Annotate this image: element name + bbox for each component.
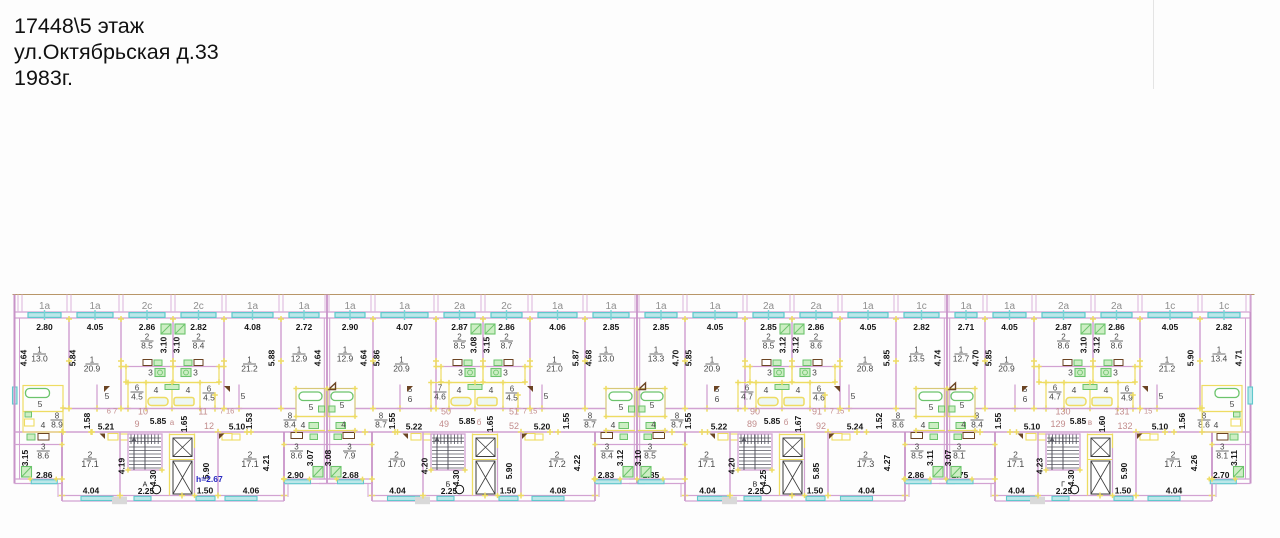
svg-text:131: 131 [1114, 407, 1129, 417]
svg-text:1.50: 1.50 [197, 486, 214, 496]
svg-text:2: 2 [555, 450, 560, 460]
svg-text:4: 4 [154, 385, 159, 395]
svg-text:5: 5 [1230, 399, 1235, 409]
svg-text:12.9: 12.9 [337, 354, 354, 364]
svg-text:4: 4 [301, 420, 306, 430]
svg-text:2.25: 2.25 [138, 486, 155, 496]
svg-text:4.64: 4.64 [359, 349, 369, 366]
svg-text:4: 4 [186, 385, 191, 395]
svg-text:3.10: 3.10 [172, 336, 182, 353]
svg-text:5: 5 [650, 400, 655, 410]
svg-text:3: 3 [148, 368, 153, 378]
svg-text:13.0: 13.0 [31, 354, 48, 364]
svg-text:5.86: 5.86 [372, 349, 382, 366]
svg-text:5.85: 5.85 [764, 416, 781, 426]
svg-text:1.55: 1.55 [561, 412, 571, 429]
svg-text:5.90: 5.90 [1186, 349, 1196, 366]
svg-text:4.7: 4.7 [741, 392, 753, 402]
svg-text:3.12: 3.12 [1092, 336, 1102, 353]
svg-text:5.10: 5.10 [1152, 422, 1169, 432]
svg-text:4.64: 4.64 [19, 349, 29, 366]
svg-text:8.5: 8.5 [141, 341, 153, 351]
svg-text:5.85: 5.85 [459, 416, 476, 426]
svg-text:4.64: 4.64 [313, 349, 323, 366]
svg-text:2.25: 2.25 [1056, 486, 1073, 496]
svg-text:4: 4 [961, 421, 966, 430]
svg-text:4: 4 [764, 385, 769, 395]
svg-text:б: б [477, 418, 482, 427]
svg-text:5.21: 5.21 [98, 422, 115, 432]
svg-text:8.6: 8.6 [37, 451, 49, 461]
svg-text:в: в [1088, 418, 1092, 427]
svg-text:2: 2 [1013, 450, 1018, 460]
svg-text:8.1: 8.1 [1216, 451, 1228, 461]
svg-text:2.85: 2.85 [653, 322, 670, 332]
svg-text:4.08: 4.08 [244, 322, 261, 332]
svg-text:4: 4 [1214, 420, 1219, 430]
svg-text:17.1: 17.1 [698, 459, 716, 469]
svg-text:2.86: 2.86 [1108, 322, 1125, 332]
svg-text:8.7: 8.7 [501, 341, 513, 351]
svg-text:3.08: 3.08 [469, 336, 479, 353]
svg-text:1.55: 1.55 [387, 412, 397, 429]
svg-text:89: 89 [747, 419, 757, 429]
svg-text:8.4: 8.4 [284, 420, 296, 430]
svg-text:8.7: 8.7 [375, 420, 387, 430]
svg-text:8.6: 8.6 [1198, 420, 1210, 430]
svg-text:12: 12 [204, 421, 214, 431]
svg-text:5: 5 [105, 391, 110, 401]
svg-text:5.10: 5.10 [1024, 422, 1041, 432]
svg-text:4: 4 [651, 421, 656, 430]
svg-text:4.5: 4.5 [506, 393, 518, 403]
svg-text:132: 132 [1117, 421, 1132, 431]
svg-text:5.22: 5.22 [711, 422, 728, 432]
svg-text:2.72: 2.72 [296, 322, 313, 332]
svg-text:8.7: 8.7 [584, 420, 596, 430]
svg-text:5.85: 5.85 [811, 462, 821, 479]
svg-text:52: 52 [509, 421, 519, 431]
svg-text:2.87: 2.87 [1055, 322, 1072, 332]
svg-text:12.7: 12.7 [953, 354, 970, 364]
svg-text:17448\5 этаж: 17448\5 этаж [14, 14, 145, 38]
svg-text:8.4: 8.4 [971, 420, 983, 430]
svg-text:5.90: 5.90 [1119, 462, 1129, 479]
svg-text:2: 2 [704, 450, 709, 460]
svg-text:2.87: 2.87 [451, 322, 468, 332]
svg-text:13.0: 13.0 [598, 354, 615, 364]
svg-text:6 7: 6 7 [107, 407, 117, 416]
svg-text:17.1: 17.1 [241, 459, 259, 469]
svg-text:3.11: 3.11 [925, 450, 935, 466]
svg-text:3: 3 [1113, 368, 1118, 378]
svg-text:5: 5 [544, 391, 549, 401]
svg-text:4: 4 [1072, 385, 1077, 395]
svg-text:2: 2 [394, 450, 399, 460]
svg-text:3.10: 3.10 [633, 449, 643, 466]
svg-text:90: 90 [750, 407, 760, 417]
svg-text:17.1: 17.1 [81, 459, 99, 469]
svg-text:17.3: 17.3 [857, 459, 875, 469]
svg-text:3.10: 3.10 [159, 336, 169, 353]
svg-text:2.71: 2.71 [958, 322, 975, 332]
svg-text:5.85: 5.85 [150, 416, 167, 426]
svg-text:4.05: 4.05 [860, 322, 877, 332]
svg-text:10: 10 [138, 407, 148, 417]
svg-text:5.85: 5.85 [882, 349, 892, 366]
svg-text:4: 4 [796, 385, 801, 395]
svg-text:4.30: 4.30 [451, 469, 461, 486]
svg-text:4.08: 4.08 [550, 486, 567, 496]
svg-text:5: 5 [1159, 391, 1164, 401]
svg-text:4.05: 4.05 [1162, 322, 1179, 332]
svg-text:5.84: 5.84 [68, 349, 78, 366]
svg-text:4.68: 4.68 [584, 349, 594, 366]
svg-text:3.12: 3.12 [615, 449, 625, 466]
svg-text:5: 5 [619, 402, 624, 412]
svg-text:4.70: 4.70 [671, 349, 681, 366]
svg-text:4.74: 4.74 [933, 349, 943, 366]
svg-text:21.2: 21.2 [1159, 364, 1176, 374]
svg-text:2.82: 2.82 [913, 322, 930, 332]
svg-text:3.15: 3.15 [20, 449, 30, 466]
svg-text:4.30: 4.30 [148, 469, 158, 486]
svg-text:4.20: 4.20 [420, 457, 430, 474]
svg-text:5: 5 [309, 402, 314, 412]
svg-text:4.19: 4.19 [117, 457, 127, 474]
svg-text:6: 6 [1023, 394, 1028, 404]
svg-text:2.86: 2.86 [139, 322, 156, 332]
svg-text:3.12: 3.12 [791, 336, 801, 353]
svg-text:1.65: 1.65 [179, 415, 189, 432]
svg-text:4.05: 4.05 [87, 322, 104, 332]
svg-text:8.6: 8.6 [1111, 341, 1123, 351]
svg-text:6: 6 [408, 394, 413, 404]
svg-text:3.08: 3.08 [323, 449, 333, 466]
svg-text:4.25: 4.25 [758, 469, 768, 486]
svg-text:5.22: 5.22 [406, 422, 423, 432]
svg-text:3.11: 3.11 [1229, 450, 1239, 466]
svg-text:4.04: 4.04 [1008, 486, 1025, 496]
svg-text:4.07: 4.07 [396, 322, 413, 332]
svg-text:17.0: 17.0 [388, 459, 406, 469]
svg-text:4.6: 4.6 [813, 393, 825, 403]
svg-text:5.88: 5.88 [267, 349, 277, 366]
svg-text:129: 129 [1050, 419, 1065, 429]
svg-text:8.4: 8.4 [193, 341, 205, 351]
svg-text:4.04: 4.04 [699, 486, 716, 496]
svg-text:13.5: 13.5 [908, 354, 925, 364]
svg-text:4.27: 4.27 [882, 454, 892, 471]
svg-text:4.9: 4.9 [1121, 393, 1133, 403]
svg-text:ул.Октябрьская д.33: ул.Октябрьская д.33 [14, 40, 219, 64]
svg-text:4: 4 [1104, 385, 1109, 395]
svg-text:1.50: 1.50 [1115, 486, 1132, 496]
svg-text:4.06: 4.06 [549, 322, 566, 332]
svg-text:3.15: 3.15 [482, 336, 492, 353]
svg-text:2.82: 2.82 [1216, 322, 1233, 332]
svg-text:4.06: 4.06 [243, 486, 260, 496]
svg-text:б: б [784, 418, 789, 427]
svg-text:8.6: 8.6 [1058, 341, 1070, 351]
svg-text:4.23: 4.23 [1035, 457, 1045, 474]
svg-text:20.9: 20.9 [998, 364, 1015, 374]
svg-text:3: 3 [193, 368, 198, 378]
svg-text:4.21: 4.21 [261, 454, 271, 471]
svg-text:8.5: 8.5 [454, 341, 466, 351]
svg-text:а: а [170, 418, 175, 427]
svg-text:4: 4 [341, 421, 346, 430]
svg-text:5: 5 [929, 402, 934, 412]
svg-text:20.8: 20.8 [857, 364, 874, 374]
svg-text:3.10: 3.10 [1079, 336, 1089, 353]
svg-text:7.9: 7.9 [344, 451, 356, 461]
svg-text:1.53: 1.53 [244, 412, 254, 429]
svg-text:5.20: 5.20 [534, 422, 551, 432]
svg-text:13.3: 13.3 [648, 354, 665, 364]
svg-text:3: 3 [812, 368, 817, 378]
svg-text:4.7: 4.7 [1049, 392, 1061, 402]
svg-text:1.60: 1.60 [1097, 415, 1107, 432]
svg-text:3: 3 [1068, 368, 1073, 378]
svg-text:3: 3 [503, 368, 508, 378]
svg-text:8.4: 8.4 [601, 451, 613, 461]
svg-text:5: 5 [38, 399, 43, 409]
svg-text:4: 4 [921, 420, 926, 430]
svg-text:4.04: 4.04 [83, 486, 100, 496]
svg-text:5.85: 5.85 [984, 349, 994, 366]
svg-text:2.85: 2.85 [760, 322, 777, 332]
svg-text:9: 9 [134, 419, 139, 429]
svg-text:20.9: 20.9 [393, 364, 410, 374]
svg-text:2: 2 [1171, 450, 1176, 460]
svg-text:4.22: 4.22 [572, 454, 582, 471]
svg-text:11: 11 [198, 407, 207, 417]
svg-text:8.6: 8.6 [810, 341, 822, 351]
svg-text:4: 4 [611, 420, 616, 430]
svg-text:5: 5 [960, 400, 965, 410]
svg-text:2.25: 2.25 [748, 486, 765, 496]
svg-text:4.71: 4.71 [1234, 349, 1244, 366]
svg-text:1.50: 1.50 [807, 486, 824, 496]
svg-text:92: 92 [816, 421, 826, 431]
svg-text:1.65: 1.65 [485, 415, 495, 432]
svg-text:2.25: 2.25 [441, 486, 458, 496]
svg-text:2.82: 2.82 [190, 322, 207, 332]
svg-text:12.9: 12.9 [291, 354, 308, 364]
svg-text:2.90: 2.90 [342, 322, 359, 332]
svg-text:1.67: 1.67 [793, 415, 803, 432]
svg-text:4.70: 4.70 [971, 349, 981, 366]
svg-text:91: 91 [812, 407, 822, 417]
svg-text:4: 4 [457, 385, 462, 395]
svg-text:4.26: 4.26 [1189, 454, 1199, 471]
svg-text:5.87: 5.87 [571, 349, 581, 366]
svg-text:2: 2 [88, 450, 93, 460]
svg-text:h=2.67: h=2.67 [196, 474, 223, 484]
svg-text:2.86: 2.86 [498, 322, 515, 332]
svg-text:17.2: 17.2 [548, 459, 566, 469]
svg-text:2.85: 2.85 [603, 322, 620, 332]
svg-text:50: 50 [441, 407, 451, 417]
svg-text:8.6: 8.6 [892, 420, 904, 430]
svg-text:4: 4 [489, 385, 494, 395]
svg-text:17.1: 17.1 [1164, 459, 1182, 469]
svg-text:20.9: 20.9 [704, 364, 721, 374]
svg-text:3: 3 [458, 368, 463, 378]
svg-text:8.5: 8.5 [911, 451, 923, 461]
svg-text:5.85: 5.85 [684, 349, 694, 366]
svg-text:8.5: 8.5 [763, 341, 775, 351]
svg-text:4.05: 4.05 [707, 322, 724, 332]
svg-text:1.55: 1.55 [993, 412, 1003, 429]
svg-text:1.50: 1.50 [500, 486, 517, 496]
svg-text:4.04: 4.04 [858, 486, 875, 496]
svg-text:1.56: 1.56 [1177, 412, 1187, 429]
svg-text:5.90: 5.90 [504, 462, 514, 479]
svg-text:5: 5 [241, 391, 246, 401]
svg-text:49: 49 [439, 419, 449, 429]
svg-text:3: 3 [767, 368, 772, 378]
svg-text:3.07: 3.07 [305, 449, 315, 466]
svg-text:4.5: 4.5 [203, 393, 215, 403]
svg-text:17.1: 17.1 [1007, 459, 1025, 469]
svg-text:8.7: 8.7 [671, 420, 683, 430]
svg-text:5.85: 5.85 [1070, 416, 1087, 426]
svg-text:4.20: 4.20 [727, 457, 737, 474]
svg-text:13.4: 13.4 [1211, 354, 1228, 364]
svg-text:1.58: 1.58 [82, 412, 92, 429]
svg-text:5.24: 5.24 [847, 422, 864, 432]
svg-text:5: 5 [851, 391, 856, 401]
svg-text:4.04: 4.04 [389, 486, 406, 496]
svg-text:4.30: 4.30 [1066, 469, 1076, 486]
svg-text:3.07: 3.07 [943, 449, 953, 466]
svg-text:1.52: 1.52 [874, 412, 884, 429]
svg-text:2.80: 2.80 [36, 322, 53, 332]
svg-text:2: 2 [248, 450, 253, 460]
svg-text:2.86: 2.86 [808, 322, 825, 332]
svg-text:1983г.: 1983г. [14, 66, 73, 90]
svg-text:4.5: 4.5 [131, 392, 143, 402]
svg-text:4.04: 4.04 [1166, 486, 1183, 496]
svg-text:2: 2 [863, 450, 868, 460]
svg-text:4: 4 [41, 420, 46, 430]
svg-text:20.9: 20.9 [84, 364, 101, 374]
svg-text:3.12: 3.12 [778, 336, 788, 353]
svg-text:8.9: 8.9 [51, 420, 63, 430]
svg-text:8.5: 8.5 [644, 451, 656, 461]
svg-text:6: 6 [715, 394, 720, 404]
svg-text:21.0: 21.0 [546, 364, 563, 374]
svg-text:5: 5 [340, 400, 345, 410]
svg-text:1.55: 1.55 [683, 412, 693, 429]
svg-text:4.05: 4.05 [1001, 322, 1018, 332]
svg-text:51: 51 [509, 407, 519, 417]
svg-text:21.2: 21.2 [241, 364, 258, 374]
svg-text:8.1: 8.1 [953, 451, 965, 461]
svg-text:130: 130 [1055, 407, 1070, 417]
svg-text:8.6: 8.6 [291, 451, 303, 461]
svg-text:4.6: 4.6 [434, 392, 446, 402]
